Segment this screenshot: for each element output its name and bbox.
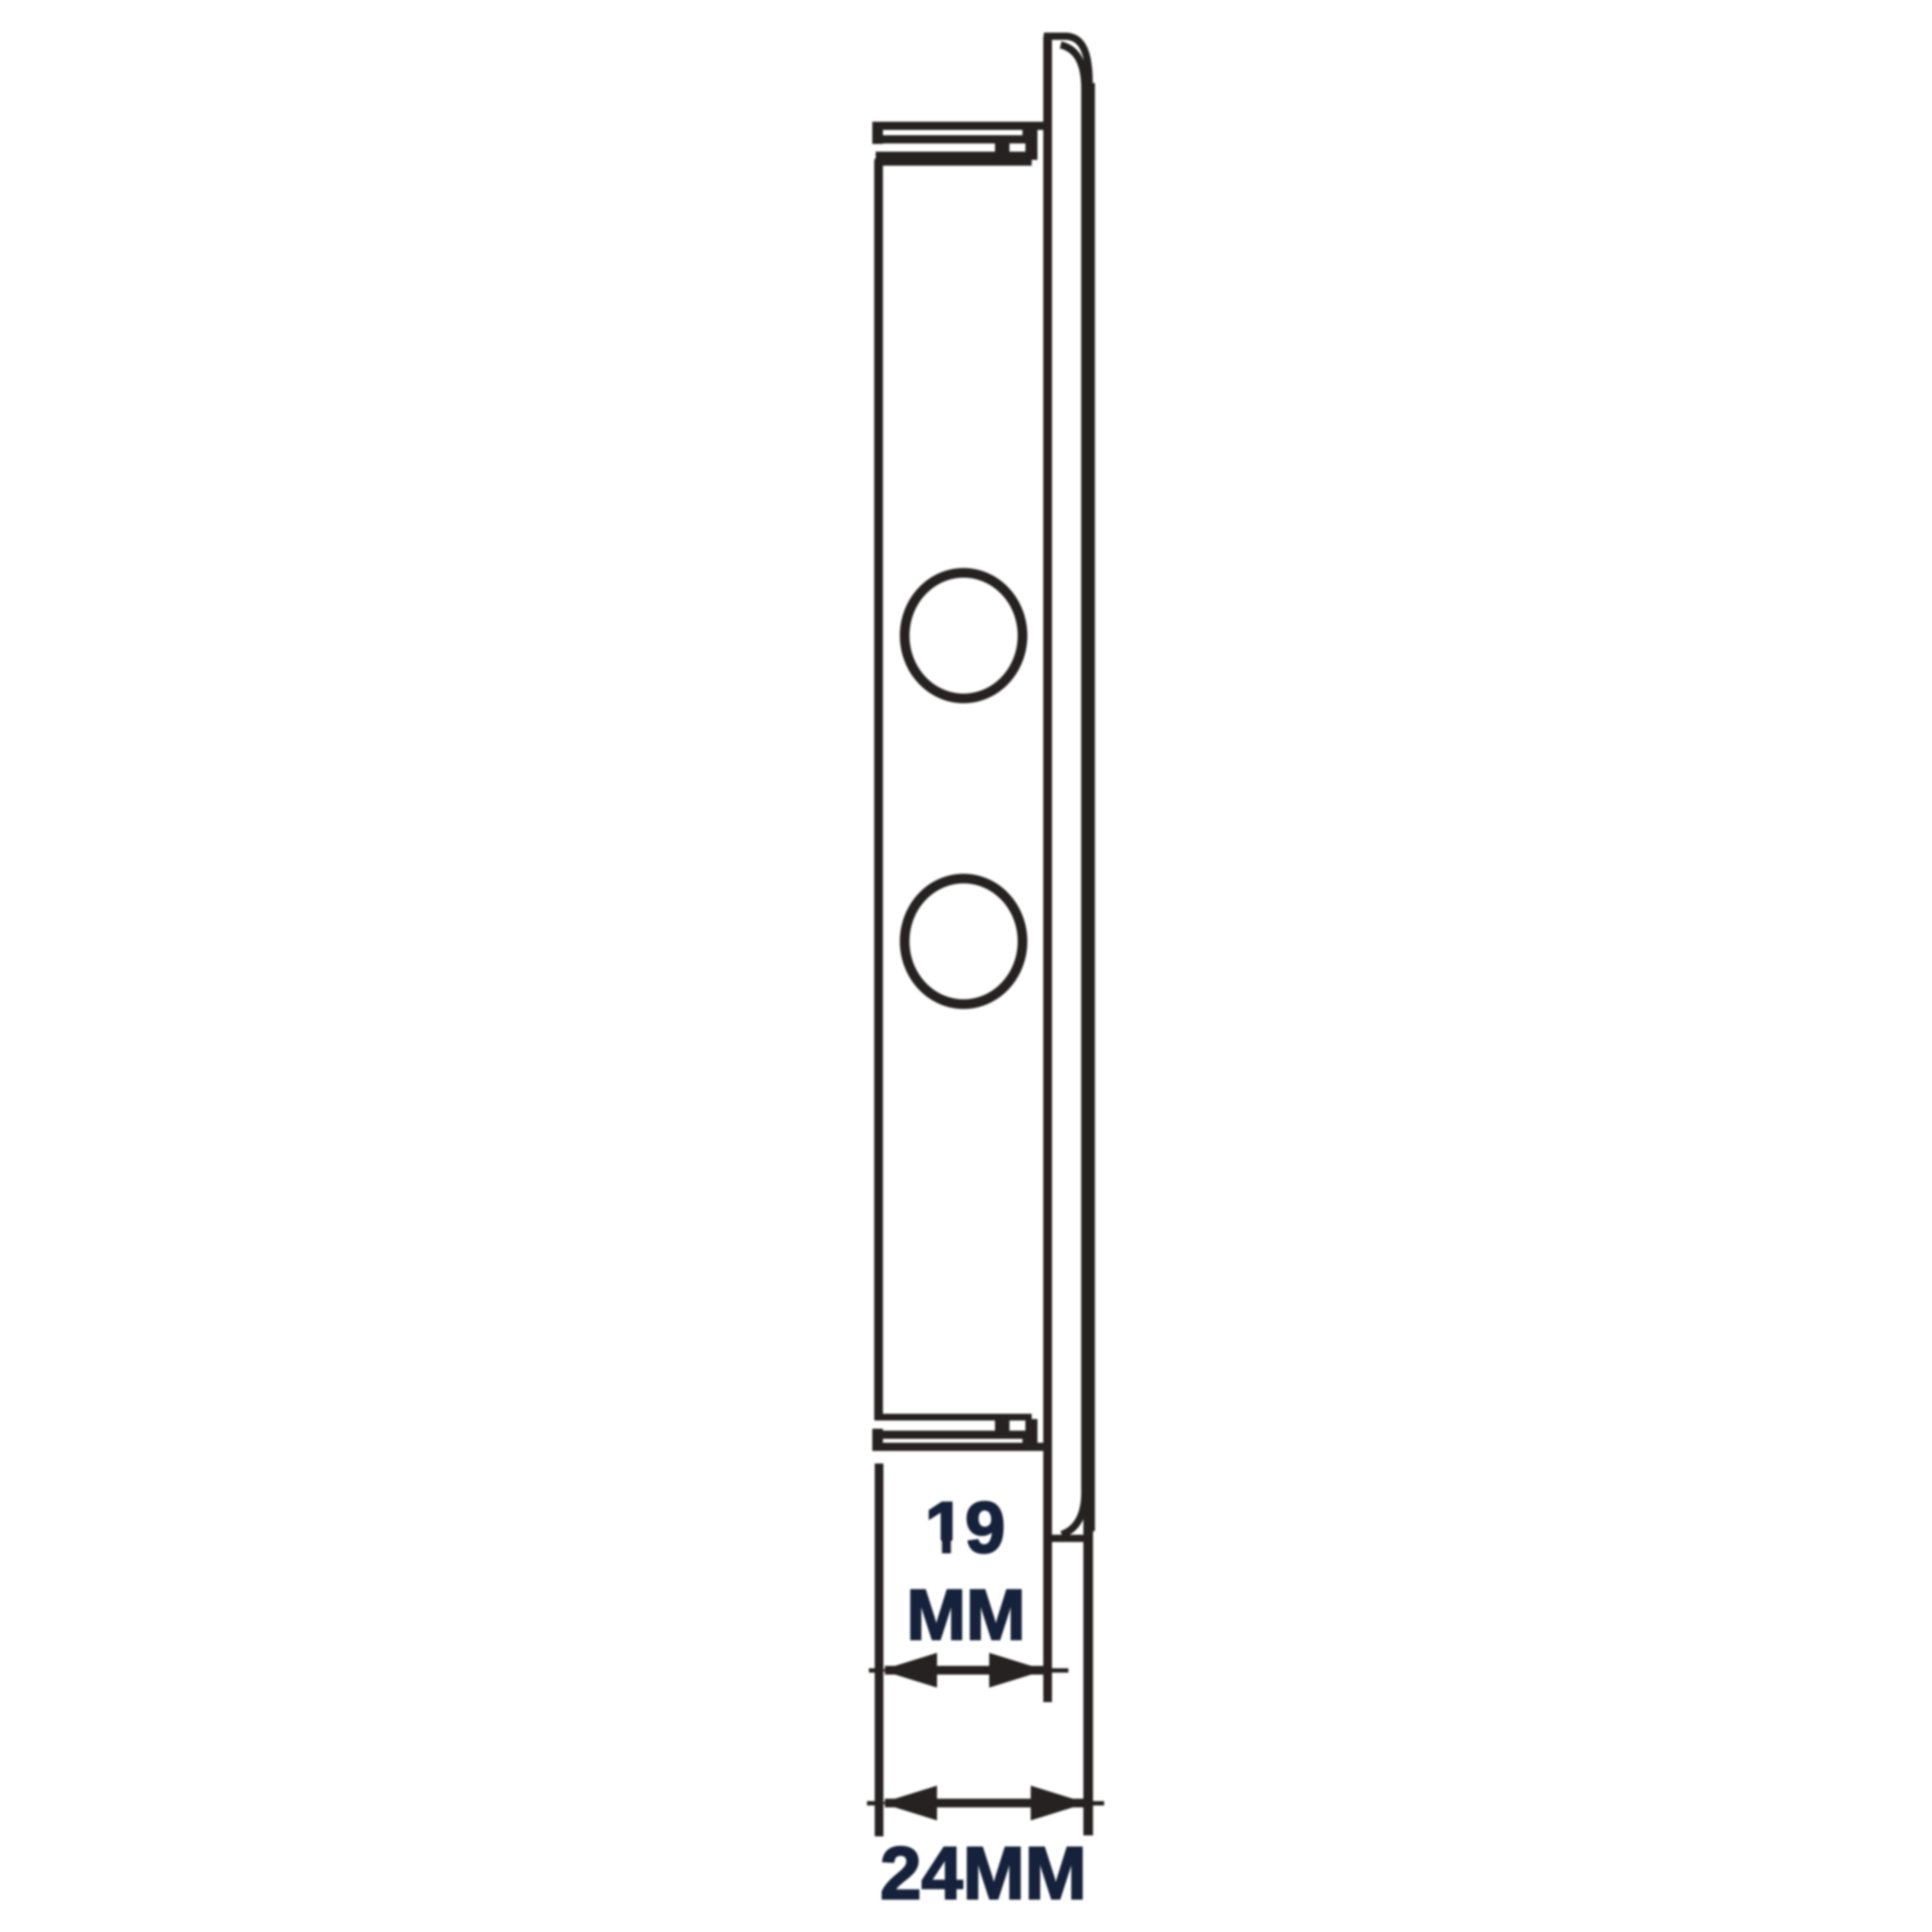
svg-text:19: 19 bbox=[925, 1487, 1006, 1568]
svg-text:MM: MM bbox=[907, 1575, 1026, 1655]
svg-text:24MM: 24MM bbox=[880, 1832, 1087, 1915]
